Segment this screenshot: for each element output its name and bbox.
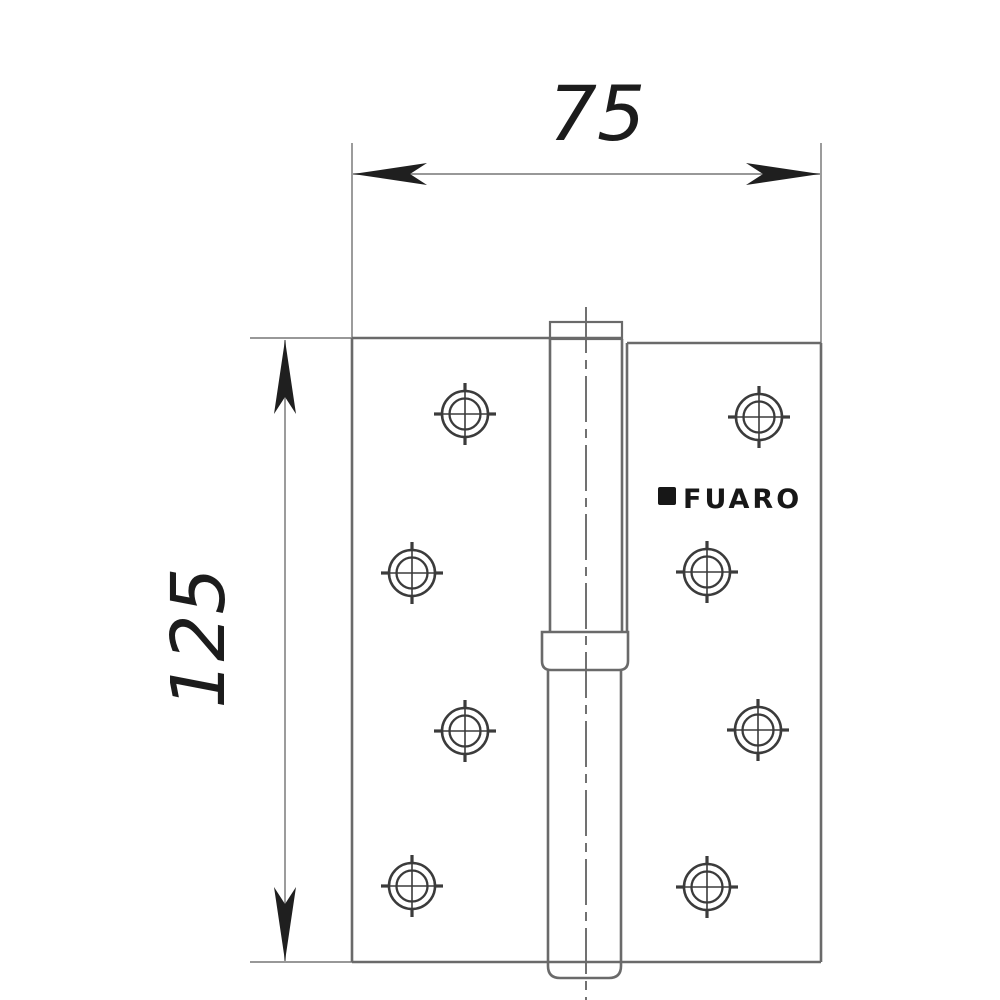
screw-hole	[434, 700, 496, 762]
hinge-knuckle	[542, 307, 628, 1000]
hinge-technical-drawing: 75 125 F	[0, 0, 1000, 1000]
width-dimension-label: 75	[549, 69, 646, 158]
lower-barrel	[548, 670, 621, 978]
drawing-canvas: 75 125 F	[0, 0, 1000, 1000]
dimension-width: 75	[352, 69, 821, 343]
screw-hole	[676, 856, 738, 918]
knuckle-collar	[542, 632, 628, 670]
screw-hole	[381, 855, 443, 917]
screw-hole	[381, 542, 443, 604]
brand-logo: FUARO	[658, 484, 802, 515]
hinge-leaf-right	[627, 343, 821, 962]
screw-hole	[676, 541, 738, 603]
screw-hole	[434, 383, 496, 445]
screw-hole	[728, 386, 790, 448]
logo-text: FUARO	[683, 484, 802, 515]
screw-hole	[727, 699, 789, 761]
logo-mark-icon	[658, 487, 676, 505]
dimension-height: 125	[156, 338, 352, 962]
height-dimension-label: 125	[156, 567, 242, 708]
